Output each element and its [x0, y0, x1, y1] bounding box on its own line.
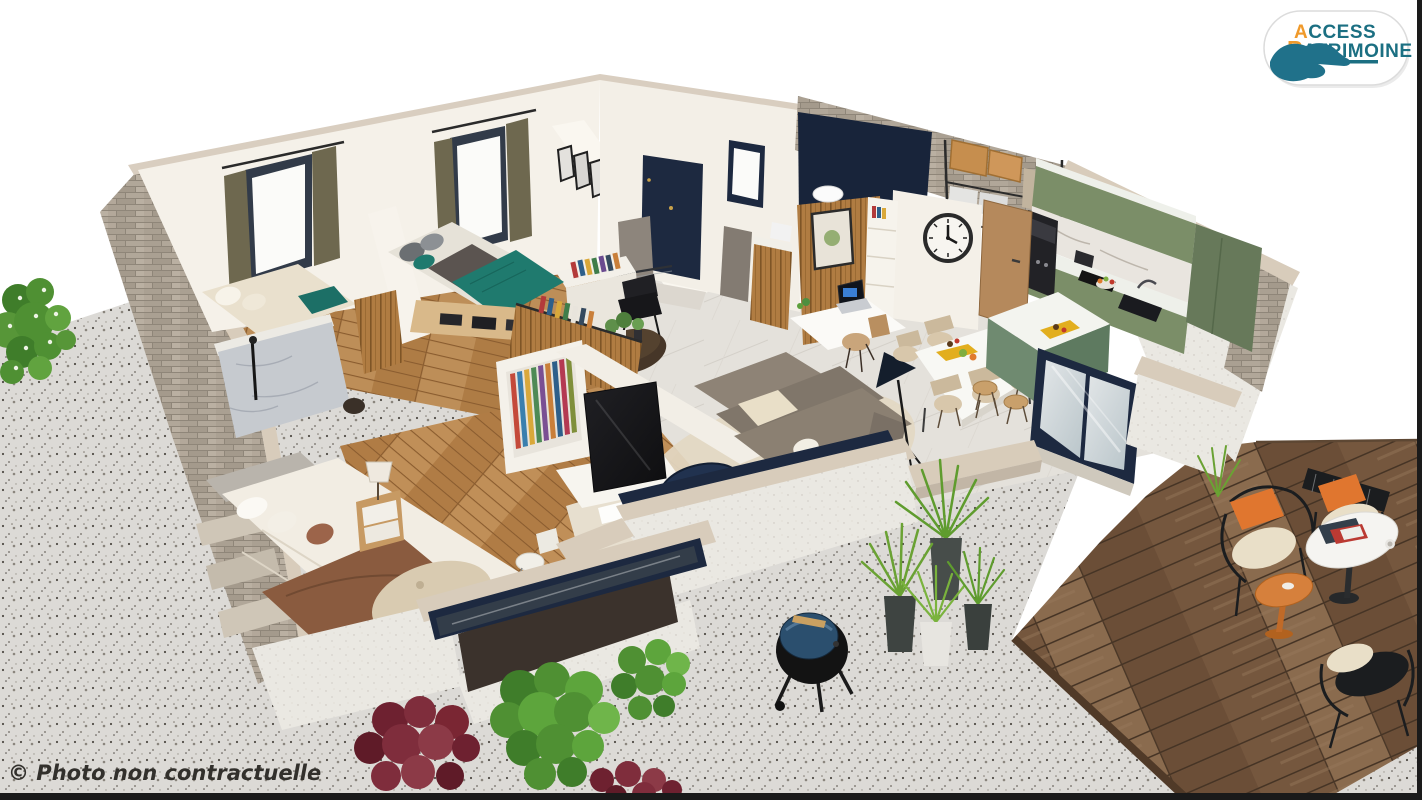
floor-plan-render: ACCESS PATRIMOINE © Photo non contractue…	[0, 0, 1422, 800]
lamp-shade	[366, 462, 392, 482]
wall-clock	[925, 215, 971, 261]
gray-door	[720, 226, 752, 302]
bottom-edge-bar	[0, 793, 1422, 800]
wheel	[775, 701, 785, 711]
logo: ACCESS PATRIMOINE	[1264, 11, 1413, 88]
curtain	[506, 118, 532, 242]
laundry-basket	[343, 398, 365, 414]
art-motif	[824, 230, 840, 246]
right-edge-bar	[1417, 0, 1422, 800]
oven-knob	[1036, 260, 1040, 264]
glass-pane	[1084, 376, 1130, 470]
plant-pot	[884, 596, 916, 652]
vent	[833, 641, 839, 647]
shower-head	[249, 336, 257, 344]
oven-knob	[1044, 263, 1048, 267]
curtain	[312, 146, 340, 266]
plant-pot	[964, 604, 992, 650]
door-knob	[669, 206, 673, 210]
water-heater-top	[813, 186, 843, 202]
watermark-text: © Photo non contractuelle	[8, 761, 321, 785]
logo-line1: ACCESS	[1294, 22, 1376, 43]
door-hinge	[647, 178, 651, 182]
white-pot	[920, 622, 952, 666]
window-glazing	[457, 136, 502, 244]
window-glazing	[252, 164, 305, 274]
slat-cabinet	[750, 244, 792, 330]
laptop-display	[843, 288, 857, 297]
small-item	[1282, 583, 1294, 590]
clock-wall	[890, 190, 982, 330]
hall-window-glazing	[732, 148, 760, 200]
render-canvas: ACCESS PATRIMOINE © Photo non contractue…	[0, 0, 1422, 800]
